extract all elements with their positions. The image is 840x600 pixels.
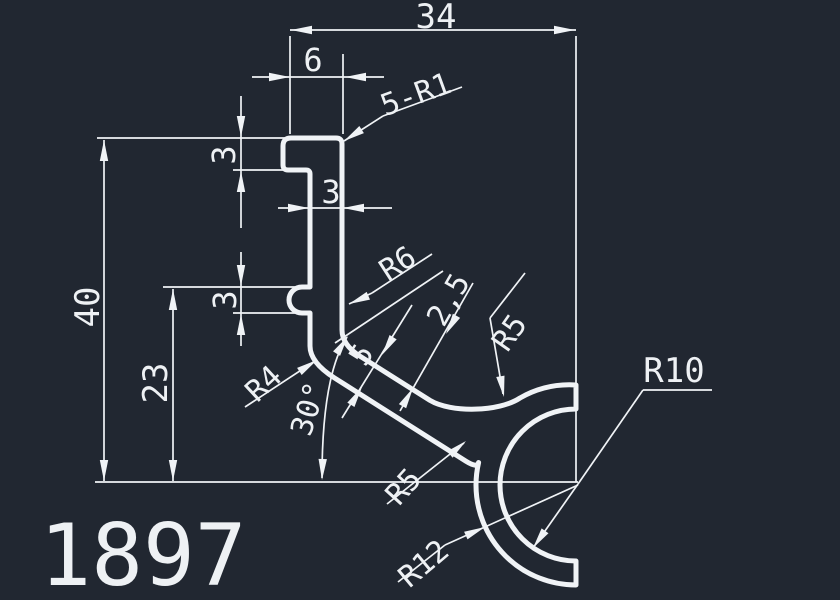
part-number: 1897 [39, 506, 246, 600]
dim-3-hook-top: 3 [205, 145, 243, 164]
dim-23: 23 [136, 363, 176, 404]
dim-3-wall: 3 [321, 173, 340, 211]
dim-40: 40 [68, 287, 108, 328]
cad-drawing-viewport[interactable]: 3465-R13334023R62,5R5R430°5R5R12R101897 [0, 0, 840, 600]
cad-drawing-canvas[interactable]: 3465-R13334023R62,5R5R430°5R5R12R101897 [0, 0, 840, 600]
dim-34: 34 [416, 0, 457, 37]
radius-r10: R10 [643, 351, 704, 391]
dim-6: 6 [303, 41, 322, 79]
dim-3-hook-lower: 3 [206, 290, 244, 309]
